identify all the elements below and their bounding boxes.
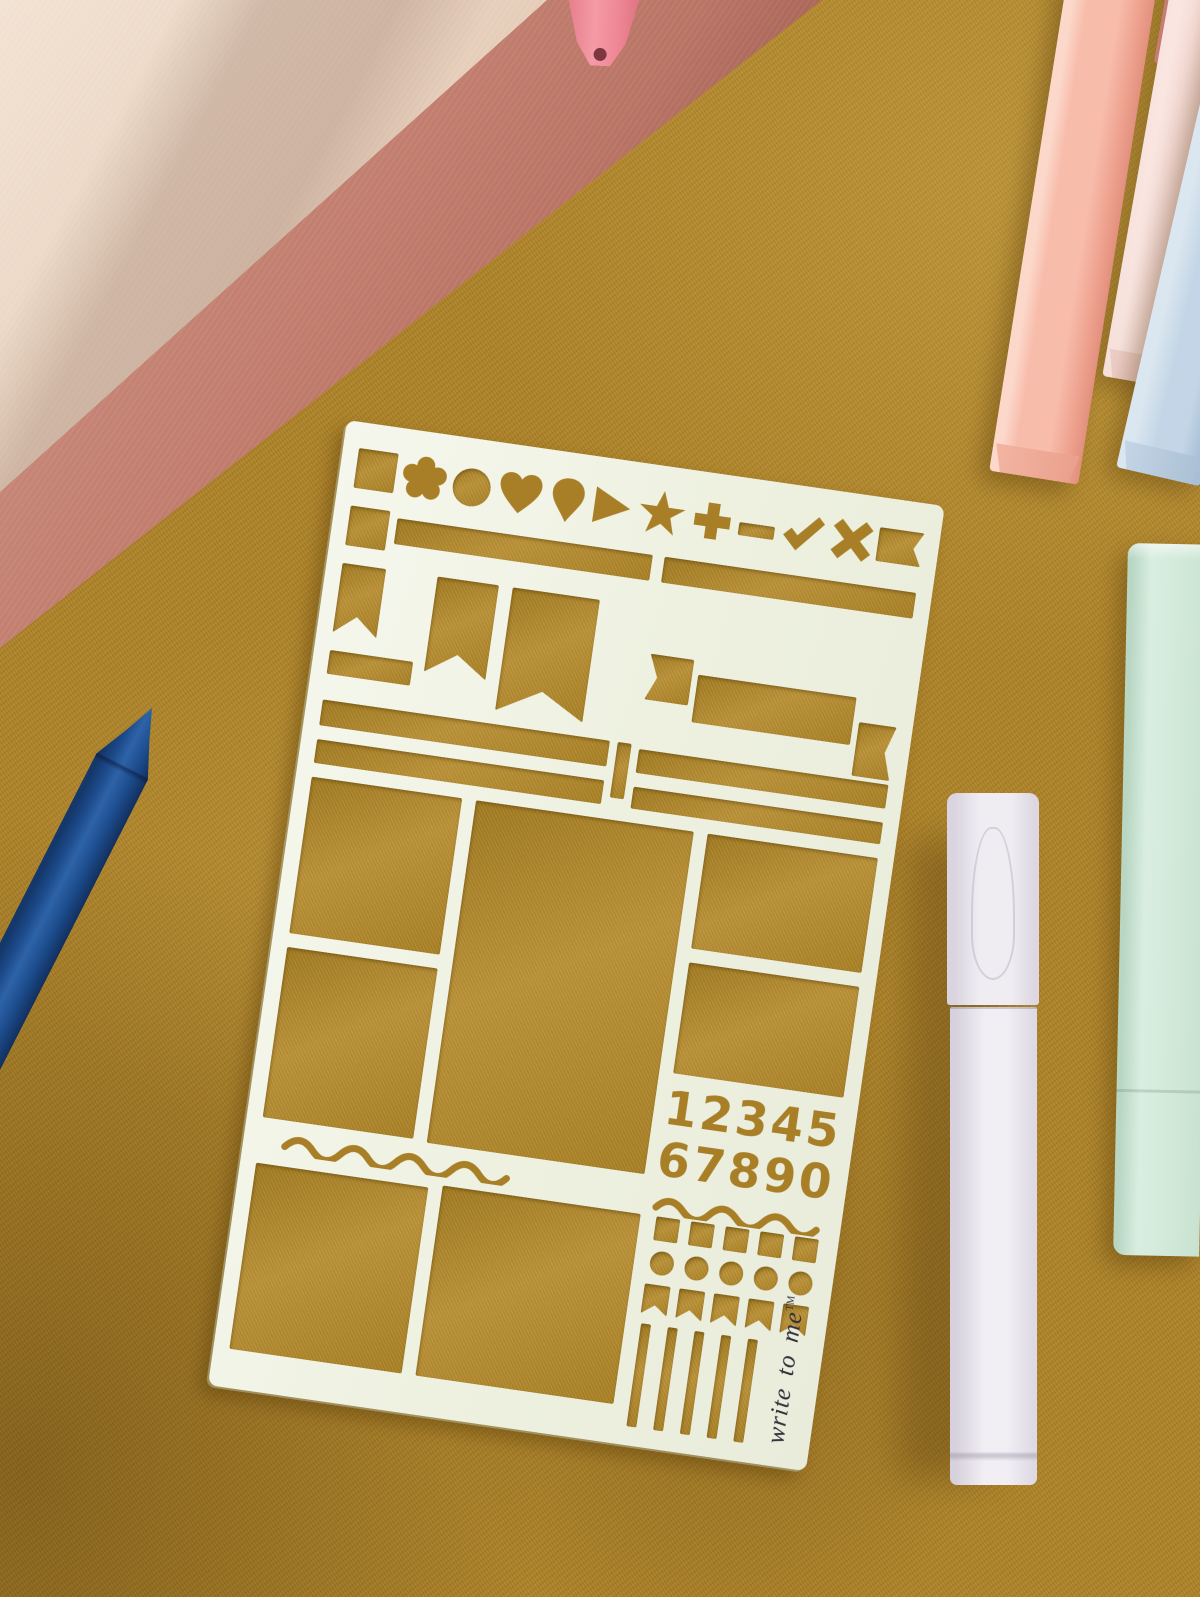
stripe <box>733 1339 758 1443</box>
check-icon <box>779 509 829 557</box>
ribbon-band <box>691 675 856 745</box>
square-dot <box>722 1226 749 1253</box>
star-icon <box>635 487 689 539</box>
layout-rect-large <box>415 1185 640 1404</box>
pennant-large <box>495 587 600 722</box>
fabric-background: 12345 67890 <box>0 0 1200 1597</box>
slot-vertical <box>610 742 632 799</box>
navy-pen <box>0 695 178 1113</box>
layout-rect <box>691 834 878 973</box>
square-cutout <box>353 448 398 493</box>
stripe <box>626 1323 651 1427</box>
layout-rect <box>263 947 438 1139</box>
slot-bar <box>394 518 653 581</box>
mint-cap-seam <box>1117 1089 1200 1094</box>
brand-trademark: TM <box>785 1295 798 1311</box>
lavender-marker-cap <box>947 793 1039 1005</box>
square-cutout <box>345 505 390 550</box>
layout-rect <box>289 777 462 955</box>
square-dot <box>792 1236 819 1263</box>
stencil-sheet: 12345 67890 <box>208 420 945 1471</box>
mini-flag <box>675 1288 705 1321</box>
slot-bar <box>327 650 414 686</box>
stripe <box>653 1327 678 1431</box>
salmon-pen-end <box>989 443 1082 485</box>
flower-icon <box>398 453 450 505</box>
square-dot <box>653 1216 680 1243</box>
minus-cutout <box>738 522 775 540</box>
balloon-icon <box>547 474 589 525</box>
pen-ball-point <box>593 47 607 61</box>
layout-rect <box>673 962 859 1097</box>
stripe <box>680 1331 705 1435</box>
mint-top-bevel <box>1128 543 1200 561</box>
blue-pen-end <box>1116 440 1200 487</box>
mini-flag <box>710 1293 740 1326</box>
square-dot <box>688 1221 715 1248</box>
round-dot <box>648 1250 675 1277</box>
round-dot <box>718 1260 745 1287</box>
lavender-marker-body <box>950 1007 1037 1485</box>
slot-bar <box>661 557 916 619</box>
layout-rect-large <box>427 800 694 1174</box>
pennant-medium <box>424 577 499 681</box>
stripe <box>707 1335 732 1439</box>
cross-icon <box>829 518 874 563</box>
circle-cutout <box>450 466 493 509</box>
heart-icon <box>494 468 546 518</box>
pennant-small <box>333 563 387 639</box>
ribbon-tail-right <box>851 722 896 781</box>
flag-cutout <box>875 527 924 567</box>
round-dot <box>683 1255 710 1282</box>
square-dot <box>757 1231 784 1258</box>
play-triangle-icon <box>590 484 635 529</box>
ribbon-tail-left <box>644 654 694 706</box>
mint-notebook <box>1113 543 1200 1257</box>
mini-flag <box>641 1283 671 1316</box>
layout-square-large <box>229 1163 428 1374</box>
plus-icon <box>690 498 735 543</box>
brand-name: write to me <box>762 1309 808 1445</box>
marker-cap-arch <box>971 827 1015 980</box>
